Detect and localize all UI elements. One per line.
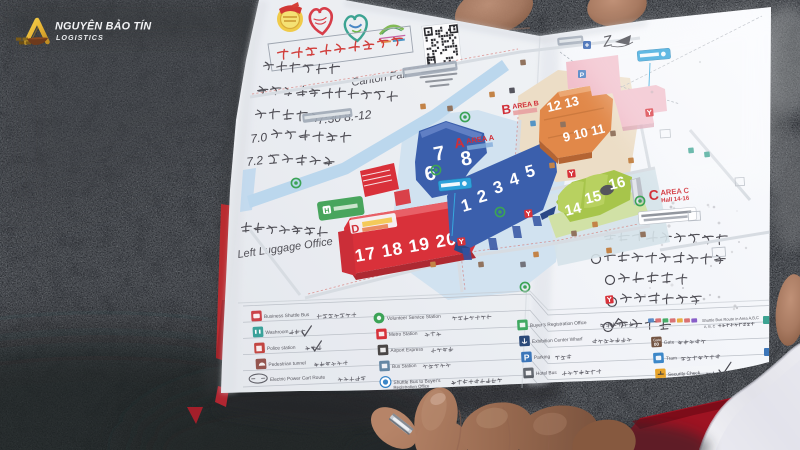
svg-text:NGUYÊN BẢO TÍN: NGUYÊN BẢO TÍN [55,20,151,33]
svg-text:LOGISTICS: LOGISTICS [56,33,104,42]
